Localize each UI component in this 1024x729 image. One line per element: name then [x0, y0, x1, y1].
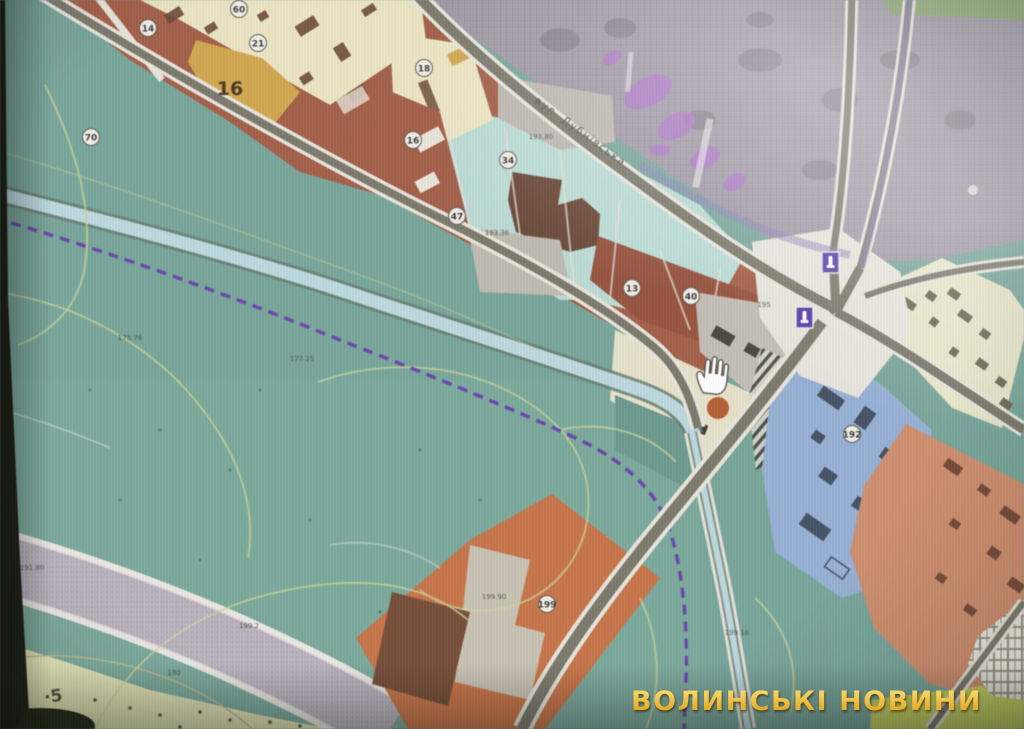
- scribble-label: ·5: [43, 686, 64, 708]
- zoning-map-canvas[interactable]: вул. Дубнівська 16 14 60 21 70 18 16 34 …: [0, 0, 1024, 729]
- svg-text:199: 199: [538, 601, 557, 611]
- map-circle-label: 21: [250, 35, 267, 52]
- svg-text:34: 34: [502, 157, 515, 167]
- elevation-label: 199.16: [725, 629, 750, 637]
- svg-text:40: 40: [685, 293, 698, 303]
- elevation-label: 190: [167, 669, 180, 677]
- svg-text:47: 47: [451, 213, 464, 223]
- block-house-number: 16: [217, 78, 243, 100]
- map-circle-label: 70: [83, 129, 100, 146]
- elevation-label: 177.25: [290, 355, 315, 363]
- photo-of-projected-map: вул. Дубнівська 16 14 60 21 70 18 16 34 …: [0, 0, 1024, 729]
- elevation-label: 193.36: [485, 229, 510, 237]
- map-marker-icon[interactable]: [796, 307, 813, 328]
- svg-text:13: 13: [626, 285, 639, 295]
- map-photo-layer: вул. Дубнівська 16 14 60 21 70 18 16 34 …: [0, 0, 1024, 729]
- map-circle-label: 34: [500, 152, 517, 169]
- elevation-label: 199.2: [239, 622, 259, 630]
- svg-text:21: 21: [252, 40, 265, 50]
- map-circle-label: 16: [405, 132, 422, 149]
- map-circle-label: 199: [538, 596, 557, 613]
- elevation-label: 191.80: [20, 564, 45, 572]
- svg-text:70: 70: [85, 134, 98, 144]
- elevation-label: 199.90: [482, 593, 507, 601]
- map-marker-icon[interactable]: [822, 252, 839, 273]
- map-circle-label: 40: [683, 288, 700, 305]
- elevation-label: 175.76: [118, 334, 143, 342]
- svg-text:192: 192: [843, 431, 862, 441]
- svg-text:18: 18: [418, 65, 431, 75]
- map-circle-label: 18: [416, 60, 433, 77]
- svg-text:16: 16: [407, 137, 420, 147]
- map-circle-label: 13: [624, 280, 641, 297]
- watermark-text: ВОЛИНСЬКІ НОВИНИ: [631, 686, 982, 717]
- elevation-label: 195: [757, 301, 770, 309]
- svg-text:14: 14: [142, 25, 155, 35]
- map-circle-label: 60: [231, 1, 248, 18]
- map-circle-label: 192: [843, 426, 862, 443]
- map-circle-label: 47: [449, 208, 466, 225]
- map-circle-label: 14: [140, 20, 157, 37]
- svg-text:60: 60: [233, 6, 246, 16]
- elevation-label: 193.80: [529, 133, 554, 141]
